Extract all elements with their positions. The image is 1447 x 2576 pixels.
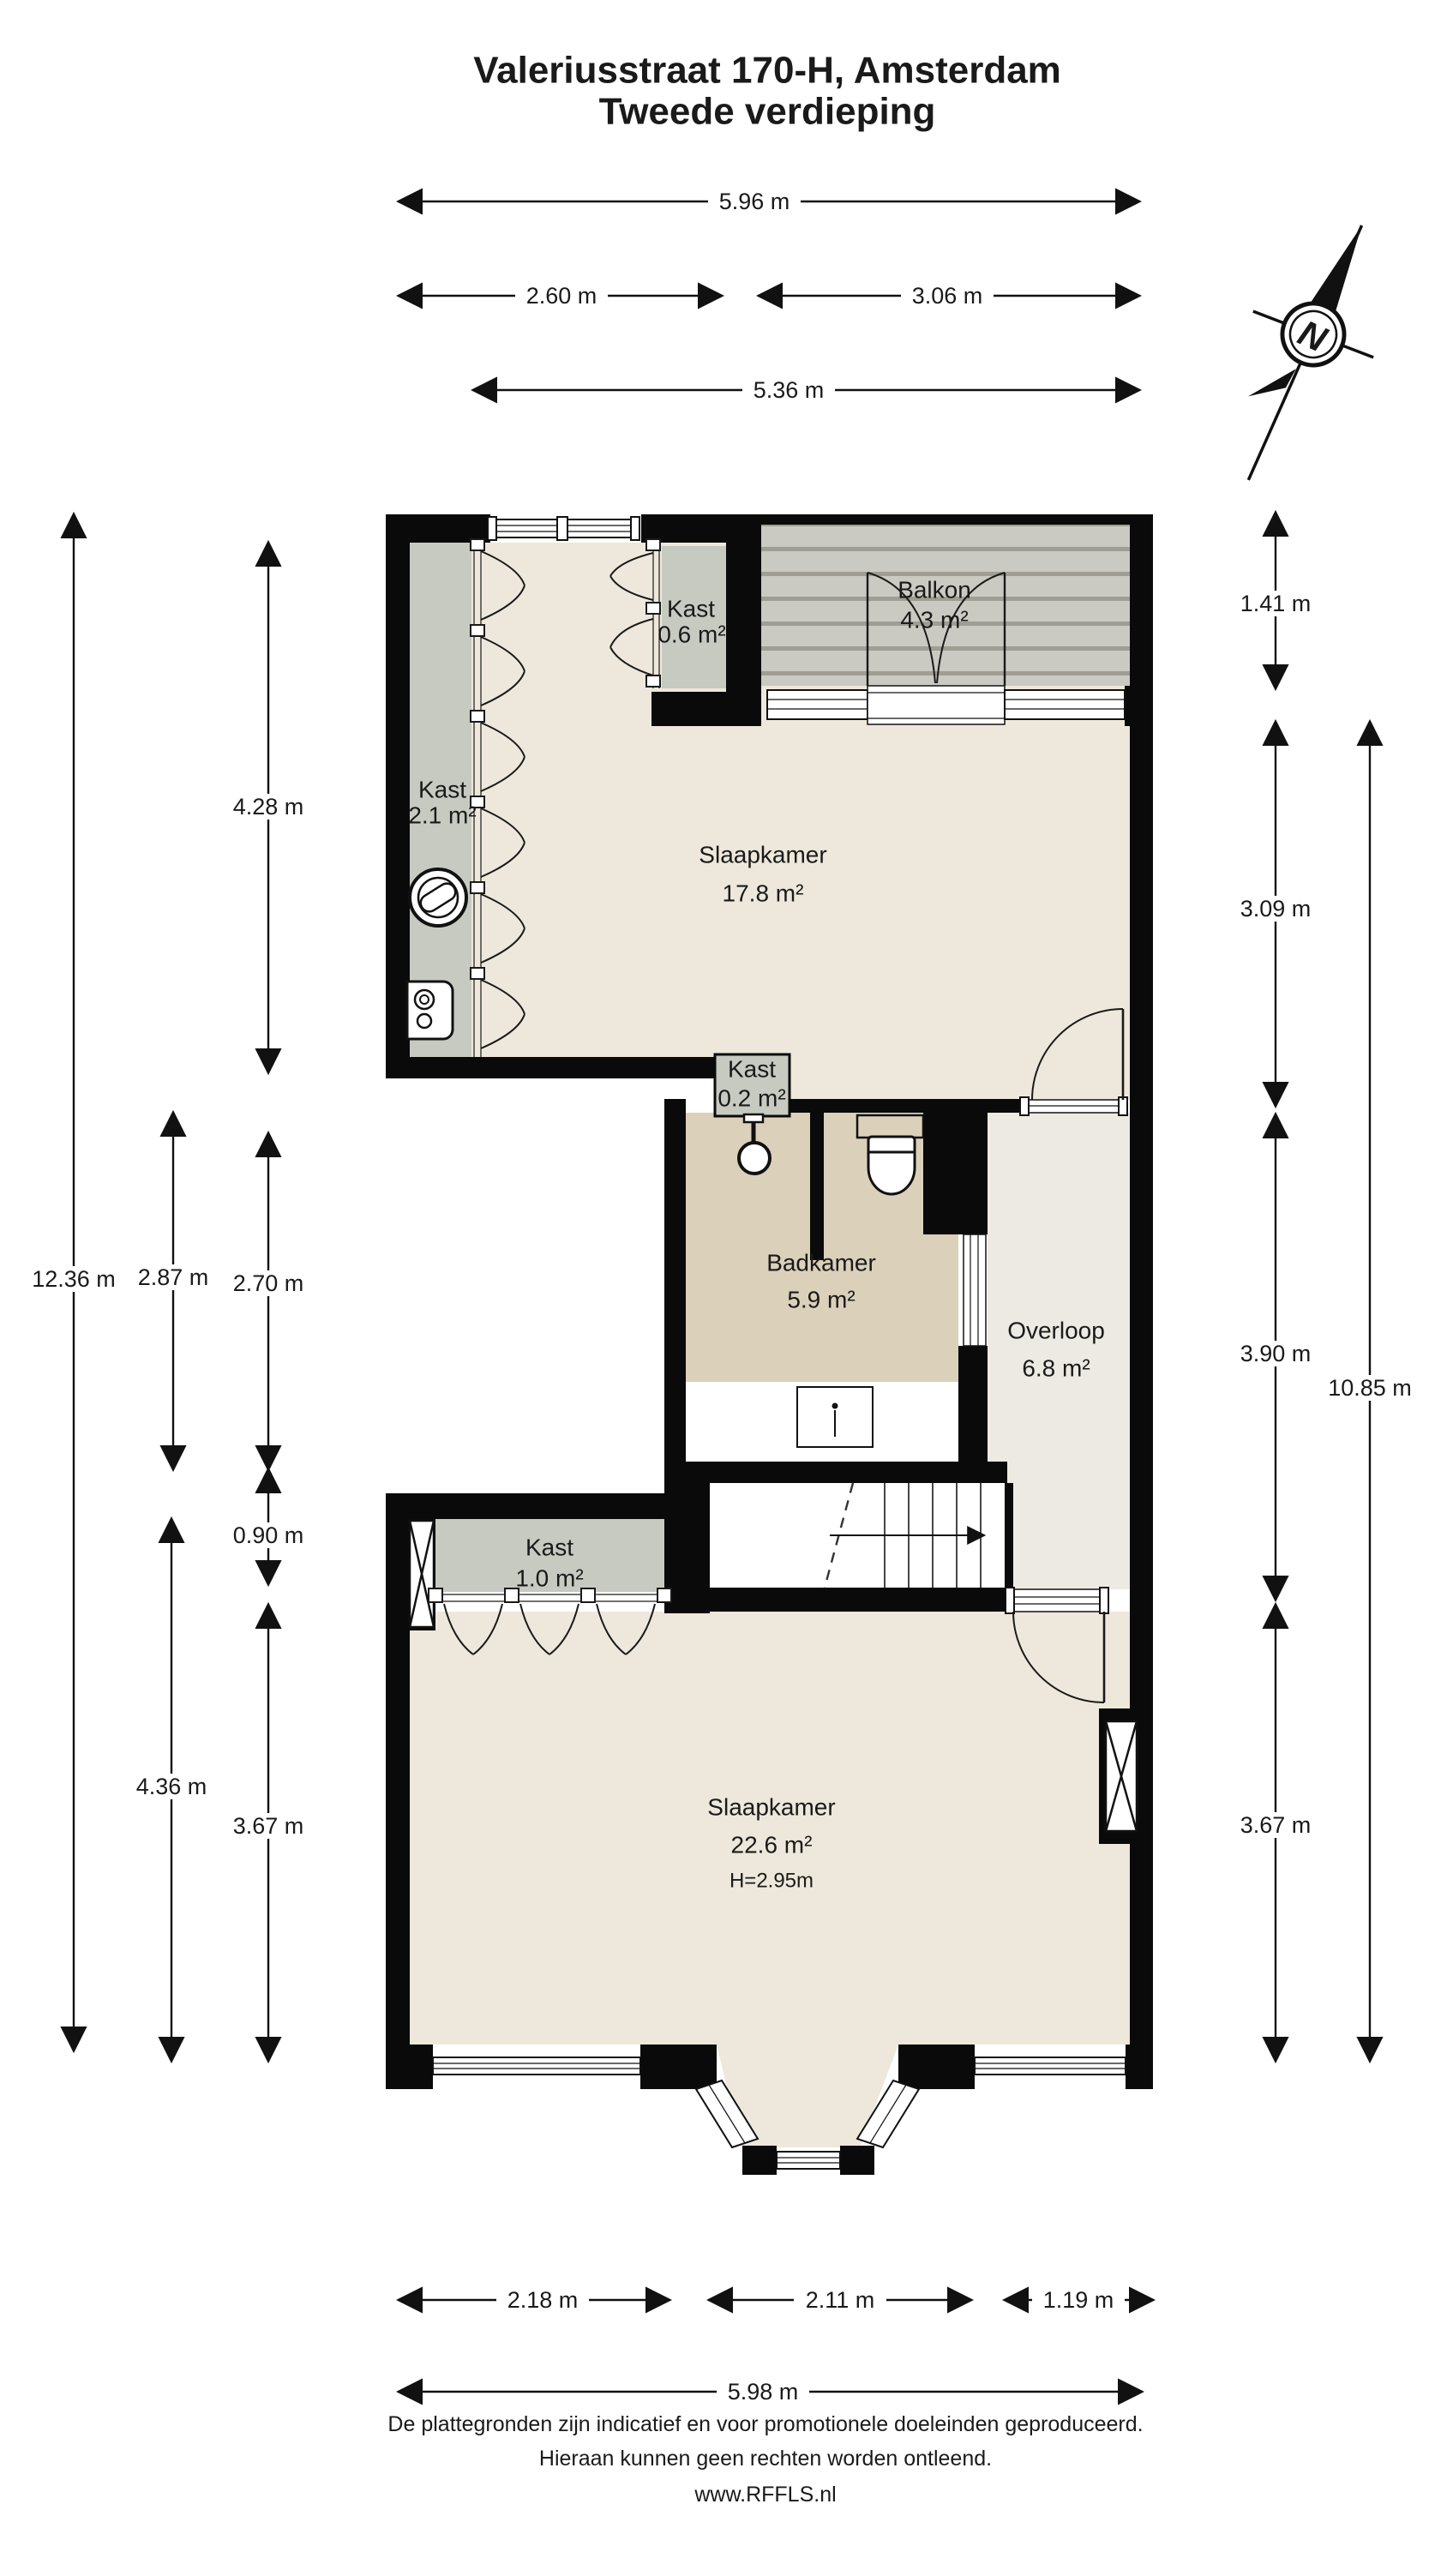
- label-balkon-area: 4.3 m²: [900, 607, 968, 633]
- label-kast21-area: 2.1 m²: [408, 802, 476, 829]
- dim-bottom-119: 1.19 m: [1043, 2287, 1114, 2313]
- title-line1: Valeriusstraat 170-H, Amsterdam: [473, 50, 1061, 92]
- dim-left-436: 4.36 m: [136, 1774, 207, 1799]
- dim-left-287: 2.87 m: [138, 1264, 209, 1290]
- dim-bottom-211: 2.11 m: [806, 2287, 875, 2313]
- label-slaapkamer1-name: Slaapkamer: [699, 842, 826, 868]
- label-overloop-name: Overloop: [1007, 1318, 1105, 1344]
- floor-plan-svg: Valeriusstraat 170-H, Amsterdam Tweede v…: [0, 0, 1447, 2572]
- chimney-shaft-right-icon: [1106, 1721, 1137, 1831]
- dim-bottom-218: 2.18 m: [507, 2287, 579, 2313]
- dim-top-596: 5.96 m: [719, 189, 790, 214]
- label-slaapkamer1-area: 17.8 m²: [723, 880, 804, 907]
- footer-line1: De plattegronden zijn indicatief en voor…: [387, 2412, 1143, 2436]
- dim-top-306: 3.06 m: [912, 283, 983, 309]
- dim-top-260: 2.60 m: [526, 283, 597, 309]
- label-kast02-name: Kast: [728, 1056, 776, 1083]
- dim-left-270: 2.70 m: [233, 1270, 304, 1296]
- dim-left-367: 3.67 m: [233, 1813, 304, 1839]
- label-slaapkamer2-area: 22.6 m²: [731, 1832, 813, 1858]
- footer-disclaimer: De plattegronden zijn indicatief en voor…: [387, 2412, 1143, 2507]
- washing-machine-icon: [410, 869, 466, 926]
- label-kast10-name: Kast: [525, 1534, 573, 1561]
- label-badkamer-area: 5.9 m²: [787, 1287, 855, 1313]
- dim-right-1085: 10.85 m: [1328, 1375, 1412, 1401]
- label-balkon-name: Balkon: [898, 577, 971, 603]
- dim-right-309: 3.09 m: [1240, 896, 1312, 922]
- label-kast10-area: 1.0 m²: [515, 1565, 583, 1592]
- dim-right-390: 3.90 m: [1240, 1341, 1312, 1366]
- compass-north-icon: N: [1190, 200, 1420, 507]
- footer-line3: www.RFFLS.nl: [693, 2483, 836, 2507]
- boiler-icon: [407, 982, 453, 1039]
- dim-left-1236: 12.36 m: [32, 1266, 116, 1292]
- label-kast21-name: Kast: [418, 777, 466, 803]
- page-title: Valeriusstraat 170-H, Amsterdam Tweede v…: [473, 50, 1061, 133]
- label-overloop-area: 6.8 m²: [1022, 1355, 1090, 1382]
- room-balkon-floor: [761, 525, 1130, 686]
- footer-line2: Hieraan kunnen geen rechten worden ontle…: [539, 2447, 992, 2471]
- label-slaapkamer2-name: Slaapkamer: [707, 1794, 835, 1821]
- label-kast06-area: 0.6 m²: [657, 621, 725, 648]
- dim-left-428: 4.28 m: [233, 794, 304, 820]
- floorplan-page: Valeriusstraat 170-H, Amsterdam Tweede v…: [0, 0, 1447, 2572]
- dim-left-090: 0.90 m: [233, 1522, 304, 1548]
- chimney-shaft-left-icon: [410, 1521, 434, 1627]
- label-kast02-area: 0.2 m²: [717, 1085, 785, 1112]
- dim-bottom-598: 5.98 m: [728, 2379, 799, 2405]
- label-slaapkamer2-height: H=2.95m: [730, 1870, 814, 1893]
- dim-right-367: 3.67 m: [1240, 1812, 1312, 1838]
- title-line2: Tweede verdieping: [599, 91, 936, 133]
- dim-top-536: 5.36 m: [754, 377, 825, 403]
- label-kast06-name: Kast: [667, 596, 715, 622]
- dim-right-141: 1.41 m: [1240, 591, 1312, 616]
- shower-icon: [797, 1387, 873, 1447]
- label-badkamer-name: Badkamer: [766, 1250, 876, 1276]
